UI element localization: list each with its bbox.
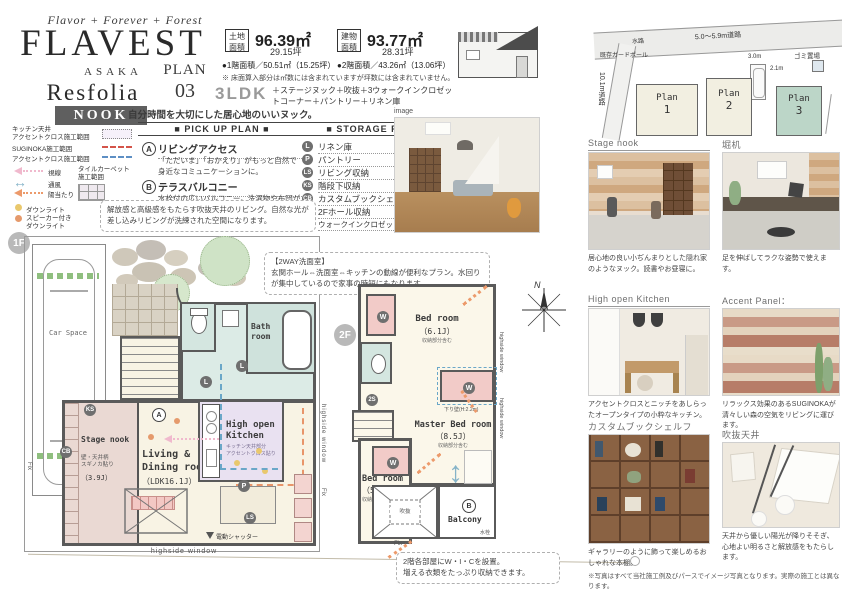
photo-cushion xyxy=(767,227,795,237)
badge-living-storage: LS xyxy=(244,512,256,524)
bed1-size: （6.1J） xyxy=(392,326,482,337)
highside-window-2f: highside window xyxy=(498,332,504,372)
wall-storage xyxy=(294,522,312,542)
badge-wic: W xyxy=(387,457,399,469)
guard-pole-label: 既存ガードポール xyxy=(600,50,648,59)
house-window xyxy=(466,50,480,60)
twoway-title: 【2WAY洗面室】 xyxy=(271,257,329,266)
photo-pendant-globe xyxy=(751,511,767,527)
area-note: ※ 床面算入部分は㎡数には含まれていますが坪数には含まれていません。 xyxy=(222,73,454,83)
photo-plant xyxy=(627,471,641,483)
stage-nook-label: Stage nook xyxy=(81,435,135,445)
void-over-living xyxy=(124,488,188,534)
legend-sight-label: 視線 xyxy=(48,167,61,177)
wic-note-l1: 2階各部屋にW・I・Cを設置。 xyxy=(403,557,504,566)
wic-note: 2階各部屋にW・I・Cを設置。 増える衣類をたっぷり収納できます。 xyxy=(396,552,560,584)
photo-leaves xyxy=(815,343,823,393)
photo-chair xyxy=(637,375,653,391)
site-lot-plan3: Plan 3 xyxy=(776,86,822,136)
living-label-l1: Living & xyxy=(142,449,190,460)
airflow-arrow-icon: ↔ xyxy=(13,174,27,190)
legend-airflow-label: 通風 xyxy=(48,179,61,189)
master-size: （8.5J） xyxy=(410,431,496,442)
speaker-downlight-dot xyxy=(148,434,154,440)
plan-tagline: 自分時間を大切にした居心地のいいヌック。 xyxy=(128,107,378,121)
pickup-a-desc: 「ただいま」「おかえり」がもっと自然で身近なコミュニケーションに。 xyxy=(158,156,304,177)
gallery-caption-stage-nook: 居心地の良い小ぢんまりとした隠れ家のようなヌック。読書やお昼寝に。 xyxy=(588,254,710,275)
wall-storage xyxy=(294,474,312,494)
photo-stage-nook xyxy=(588,152,710,250)
wic-note-l2: 増える衣類をたっぷり収納できます。 xyxy=(403,568,530,577)
photo-kitchen xyxy=(588,308,710,396)
trash-box xyxy=(812,60,824,72)
wic-bed1: W xyxy=(366,294,396,336)
living-size: （LDK16.1J） xyxy=(142,476,197,487)
flyer-page: Flavor + Forever + Forest FLAVEST ASAKA … xyxy=(0,0,842,595)
photo-books xyxy=(655,441,663,457)
storage-badge-ls: LS xyxy=(302,167,313,178)
shutter-icon xyxy=(206,532,214,539)
kitchen-counter xyxy=(202,404,220,478)
toilet-icon xyxy=(371,354,386,374)
nook-note-l2: スギノカ貼り xyxy=(81,462,114,468)
floor2-area: ●2階面積／43.26㎡（13.06坪） xyxy=(337,60,450,71)
photo-skylight xyxy=(425,122,451,135)
plan3-label: Plan xyxy=(777,94,821,104)
bed1-note: 収納部分含む xyxy=(392,337,482,344)
speaker-downlight-dot xyxy=(174,418,180,424)
legend-accent-label: アクセントクロス施工範囲 xyxy=(12,153,90,163)
accent-swatch xyxy=(102,156,132,158)
badge-linen: L xyxy=(236,360,248,372)
photo-bookshelf-wall xyxy=(663,163,693,221)
dim-a: 3.0m xyxy=(748,54,761,60)
photo-books xyxy=(685,469,695,483)
photo-books xyxy=(595,441,603,457)
land-area-tsubo: 29.15坪 xyxy=(270,45,302,58)
photo-plate xyxy=(625,443,641,457)
storage-badge-ks: KS xyxy=(302,180,313,191)
pickup-b-badge: B xyxy=(142,180,156,194)
bed-icon xyxy=(464,450,492,484)
badge-pantry: P xyxy=(238,480,250,492)
series-name: Resfolia xyxy=(18,80,168,106)
badge-linen2: L xyxy=(200,376,212,388)
badge-wic: W xyxy=(377,311,389,323)
plan1-label: Plan xyxy=(637,93,697,103)
shutter-label: 電動シャッター xyxy=(216,532,258,541)
void-label: 吹抜 xyxy=(390,507,420,515)
photo-bookshelf xyxy=(588,434,710,544)
legend-sunlight-label: 陽当たり xyxy=(48,189,74,199)
sight-arrow-line xyxy=(173,438,219,440)
storage-badge-p: P xyxy=(302,154,313,165)
bath-room-label: Bath room xyxy=(251,322,285,341)
photo-pendant-globe xyxy=(775,495,795,515)
void-2f: 吹抜 xyxy=(372,485,438,539)
bathtub-icon xyxy=(282,310,312,370)
ldk-type: 3LDK xyxy=(215,84,267,104)
bed1-label: Bed room xyxy=(392,314,482,324)
wic-bed2: W xyxy=(372,446,410,476)
balcony-label: Balcony xyxy=(448,515,482,524)
compass-icon: N xyxy=(522,280,566,332)
photo-cabinet xyxy=(589,309,620,396)
photo-sunken-desk xyxy=(722,152,840,250)
living-void-note: 解放感と高級感をもたらす吹抜天井のリビング。自然な光が差し込みリビングが洗練され… xyxy=(100,200,316,232)
highside-window-label-1f: highside window xyxy=(124,548,244,555)
car-space-label: Car Space xyxy=(33,329,103,337)
photo-person xyxy=(651,201,661,219)
sunlight-arrow-icon xyxy=(14,189,22,197)
legend-suginoka-label: SUGINOKA施工範囲 xyxy=(12,143,72,153)
tree-icon xyxy=(200,236,250,286)
site-lot-plan2: Plan 2 xyxy=(706,78,752,136)
photo-pendant xyxy=(633,313,645,327)
pickup-title: ■ PICK UP PLAN ■ xyxy=(138,122,306,136)
image-caption-label: image xyxy=(394,108,413,115)
tile-carpet-swatch xyxy=(78,184,105,201)
photo-window xyxy=(597,165,613,179)
plan1-num: 1 xyxy=(637,103,697,116)
toilet-room-2f xyxy=(360,342,392,384)
floorplan-2f: Bed room （6.1J） 収納部分含む W 2S W 下り壁(H:2.2m… xyxy=(352,278,504,550)
wall-storage xyxy=(294,498,312,518)
plan2-num: 2 xyxy=(707,99,751,112)
legend-speaker-l1: スピーカー付き xyxy=(26,215,72,222)
legend-tile-l1: タイルカーペット xyxy=(78,166,130,173)
photo-void-ceiling xyxy=(722,442,840,528)
airflow-arrow-icon: ↕ xyxy=(448,456,463,490)
photo-leaves xyxy=(823,357,833,391)
nook-note-l1: 壁・天井柄 xyxy=(81,455,109,461)
photo-table xyxy=(625,361,679,373)
photo-window xyxy=(730,452,756,483)
gallery-caption-kitchen: アクセントクロスとニッチをあしらったオープンタイプの小粋なキッチン。 xyxy=(588,400,710,421)
floor1-area: ●1階面積／50.51㎡（15.25坪） xyxy=(222,60,335,71)
fix-right-1f: Fix xyxy=(320,488,326,496)
photo-frame xyxy=(788,182,804,198)
legend-tile-l2: 施工範囲 xyxy=(78,174,104,181)
fix-left-1f: Fix xyxy=(26,462,32,470)
house-illustration xyxy=(458,26,538,78)
site-road-left-label: 10.1m道路 xyxy=(596,72,606,105)
building-area-tsubo: 28.31坪 xyxy=(382,45,414,58)
badge-stairs-storage: KS xyxy=(84,404,96,416)
stairs-1f xyxy=(120,336,180,400)
house-door xyxy=(516,56,528,78)
dim-b: 2.1m xyxy=(770,66,783,72)
photo-frame xyxy=(625,497,641,511)
suginoka-swatch xyxy=(102,146,132,148)
badge-2f-hall: 2S xyxy=(366,394,378,406)
photo-living-image xyxy=(394,117,540,233)
photo-shelf xyxy=(409,148,441,192)
photo-pendant xyxy=(457,140,473,150)
speaker-downlight-icon xyxy=(15,215,22,222)
balcony: B Balcony 水栓 xyxy=(438,485,496,539)
master-label: Master Bed room xyxy=(410,420,496,430)
highside-window-right-1f: highside window xyxy=(320,404,326,463)
legend-downlight-label: ダウンライト xyxy=(26,204,65,214)
gallery-caption-accent-panel: リラックス効果のあるSUGINOKAが清々しい森の空気をリビングに運びます。 xyxy=(722,400,840,432)
site-plan: 5.0〜5.9m道路 10.1m道路 既存ガードポール 水路 ゴミ置場 3.0m… xyxy=(598,6,842,140)
photo-disclaimer: ※写真はすべて当社施工例及びパースでイメージ写真となります。実際の施工とは異なり… xyxy=(588,570,842,590)
photo-pendant xyxy=(651,313,663,327)
badge-living-access: A xyxy=(152,408,166,422)
legend-kitchen-accent-l1: キッチン天井 xyxy=(12,126,51,133)
pickup-a-badge: A xyxy=(142,142,156,156)
building-area-label: 建物面積 xyxy=(337,29,361,52)
stage-nook-size: （3.9J） xyxy=(81,473,112,483)
master-note: 収納部分含む xyxy=(410,442,496,449)
legend-kitchen-accent-l2: アクセントクロス施工範囲 xyxy=(12,134,90,141)
badge-bookshelf: CB xyxy=(60,446,72,458)
photo-counter xyxy=(685,335,708,396)
brand-logo: FLAVEST xyxy=(8,22,218,65)
waterway-label: 水路 xyxy=(632,36,644,46)
nook-shelf xyxy=(65,403,79,543)
downlight-icon xyxy=(15,204,22,211)
land-area-label: 土地面積 xyxy=(225,29,249,52)
photo-person xyxy=(607,197,617,217)
photo-plant xyxy=(729,181,741,205)
photo-accent-panel xyxy=(722,308,840,396)
photo-books xyxy=(597,497,607,511)
gallery-caption-void-ceiling: 天井から優しい陽光が降りそそぎ、心地よい明るさと解放感をもたらします。 xyxy=(722,532,840,564)
badge-balcony: B xyxy=(462,499,476,513)
plan-number: 03 xyxy=(158,80,212,103)
highside-window-2f: highside window xyxy=(498,398,504,438)
gallery-caption-desk: 足を伸ばしてラクな姿勢で使えます。 xyxy=(722,254,840,275)
entrance-tiles xyxy=(112,284,178,336)
sight-arrow-line xyxy=(23,170,43,172)
plan-label: PLAN xyxy=(158,62,212,79)
sight-arrow-icon xyxy=(164,435,172,443)
trash-label: ゴミ置場 xyxy=(794,50,820,60)
toilet-room-1f xyxy=(180,302,216,352)
gallery-title-kitchen: High open Kitchen xyxy=(588,294,710,307)
storage-badge-l: L xyxy=(302,141,313,152)
plan2-label: Plan xyxy=(707,89,751,99)
faucet-label: 水栓 xyxy=(480,529,490,536)
photo-books xyxy=(655,497,665,511)
photo-vase xyxy=(507,198,521,218)
washer-icon xyxy=(222,310,239,327)
site-lot-plan1: Plan 1 xyxy=(636,84,698,136)
photo-window xyxy=(757,161,787,179)
legend-speaker-l2: ダウンライト xyxy=(26,223,65,230)
sunlight-arrow-line xyxy=(23,192,43,194)
gallery-title-stage-nook: Stage nook xyxy=(588,138,710,151)
site-car-stall xyxy=(750,64,766,100)
kitchen-accent-swatch xyxy=(102,129,132,139)
gallery-caption-bookshelf: ギャラリーのように飾って楽しめるおしゃれな本棚。 xyxy=(588,548,710,569)
plan3-num: 3 xyxy=(777,104,821,117)
ldk-features: ＋ステージヌック＋吹抜＋3ウォークインクロゼットコーナー＋パントリー＋リネン庫 xyxy=(272,85,457,107)
site-boundary-line xyxy=(825,94,832,134)
